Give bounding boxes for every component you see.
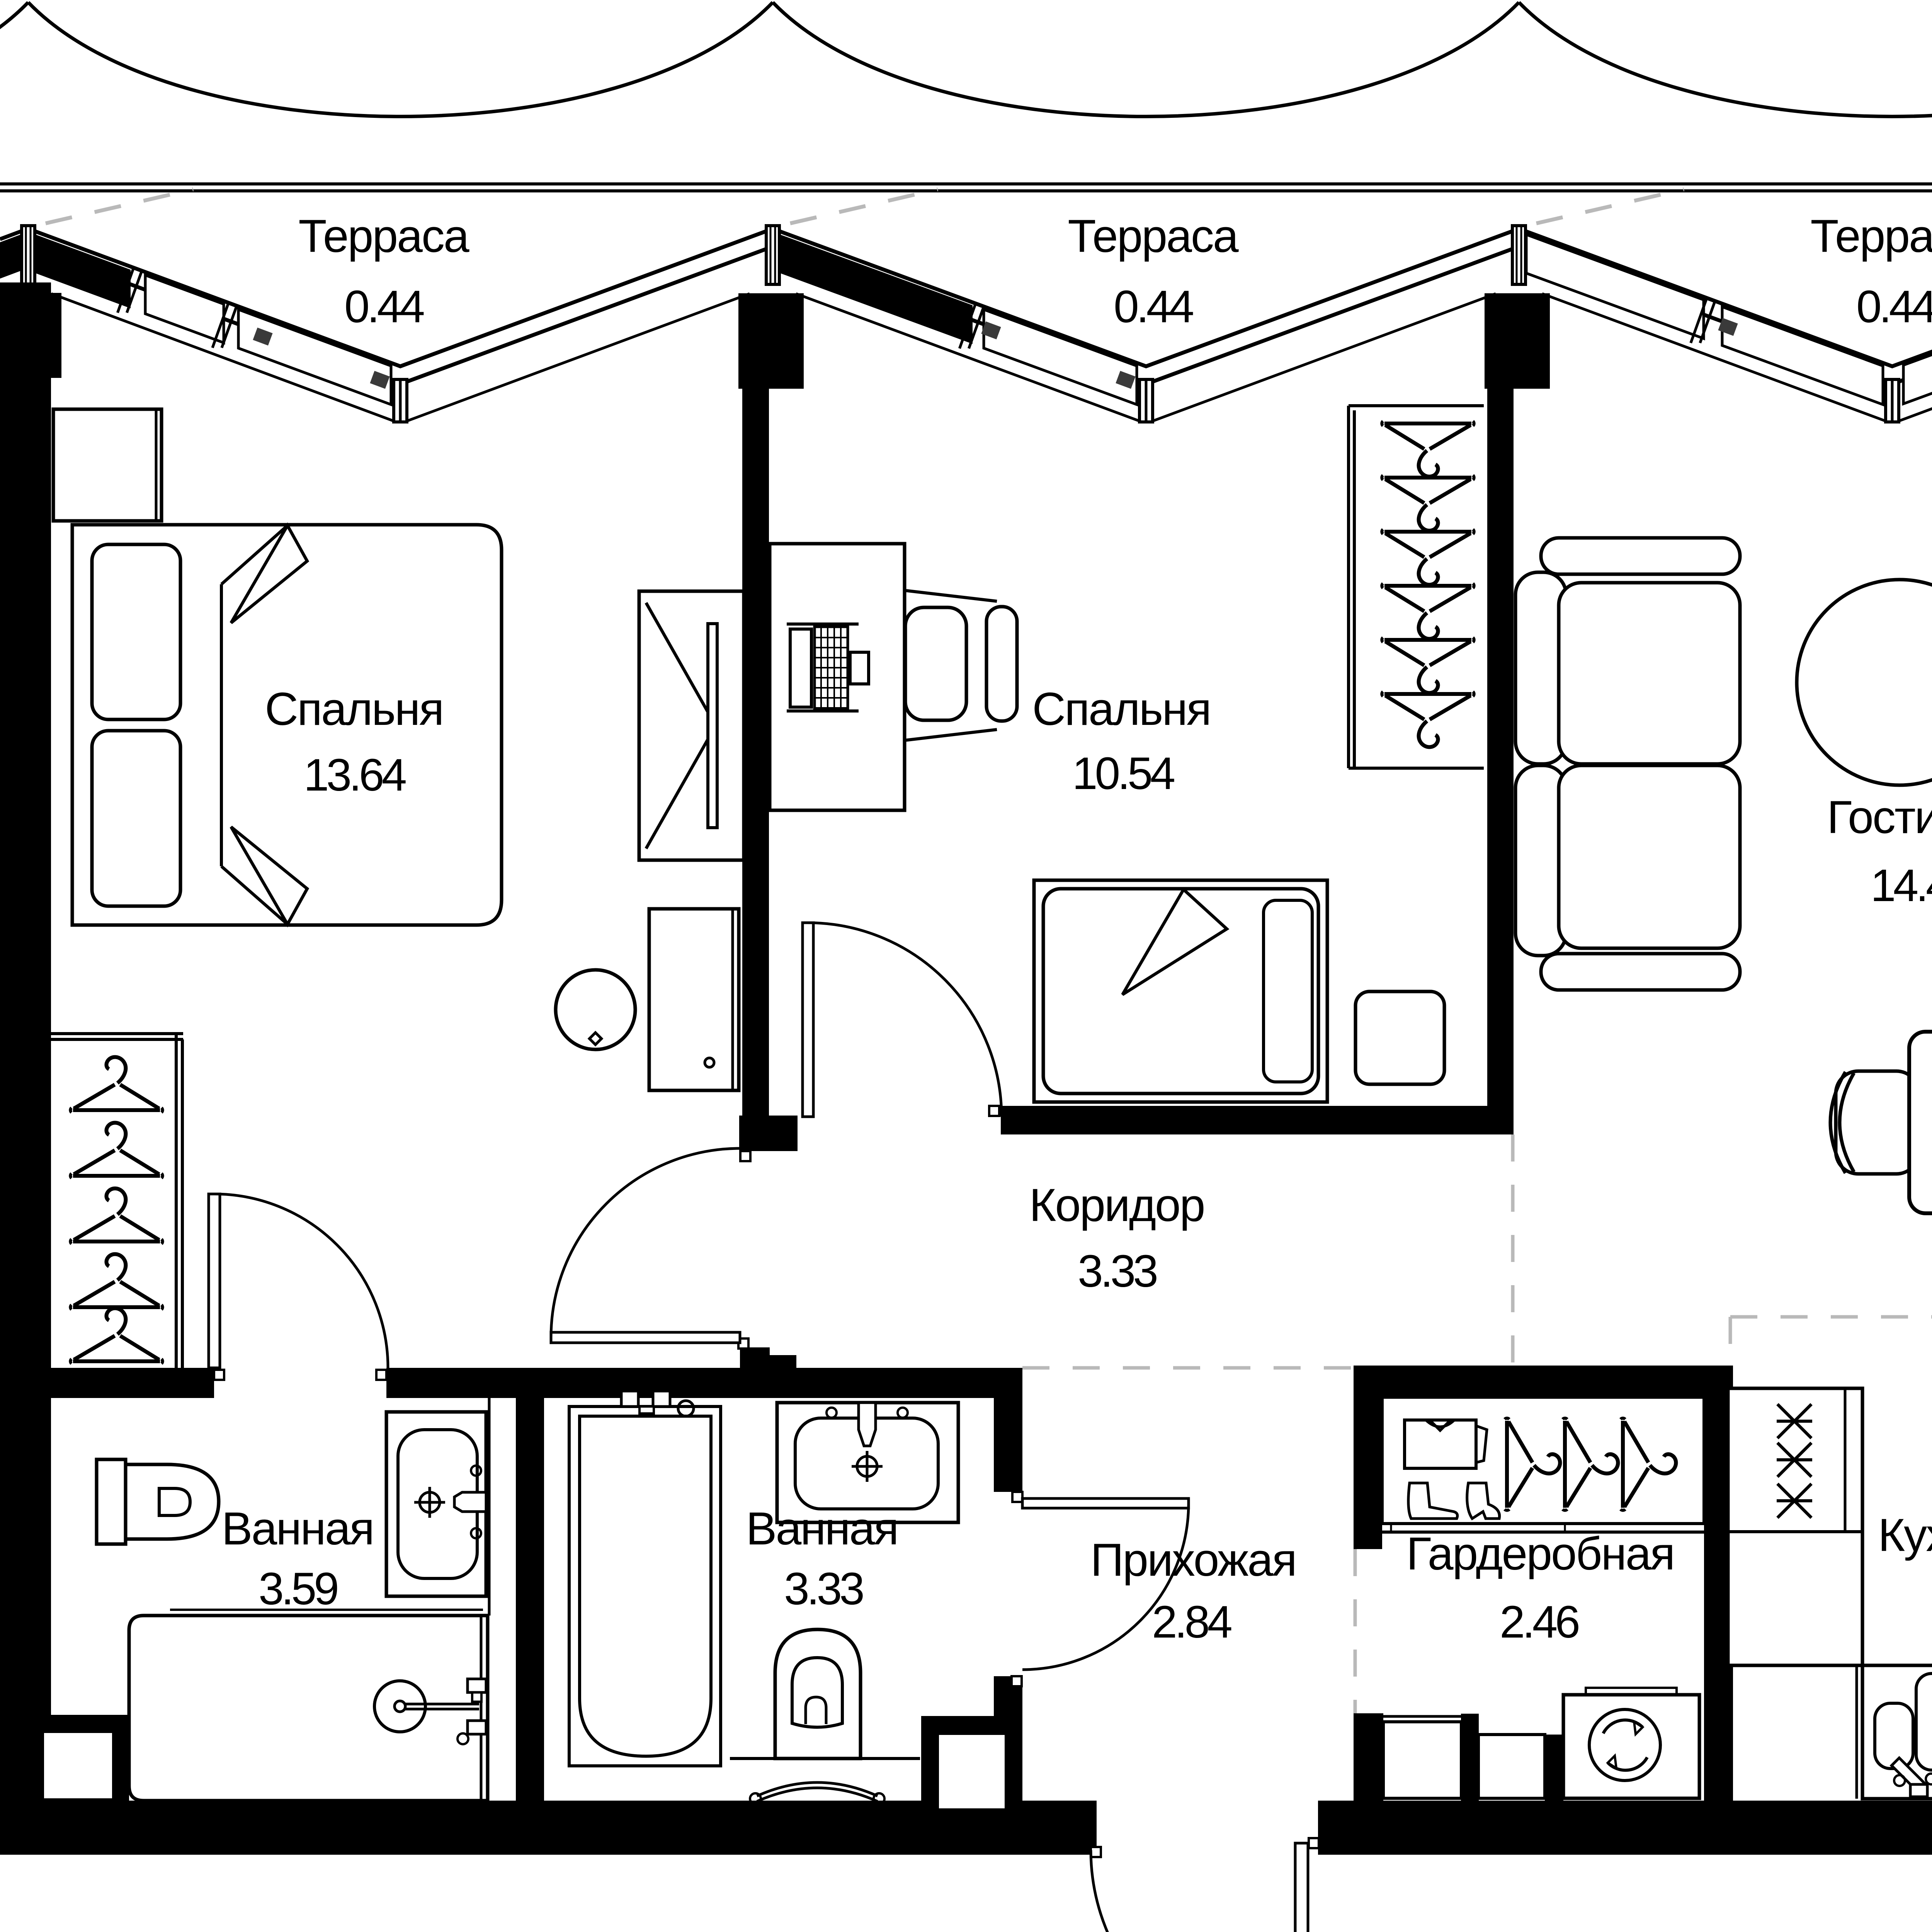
svg-text:14.40: 14.40 <box>1871 860 1932 911</box>
svg-text:0.44: 0.44 <box>1114 281 1193 332</box>
svg-text:2.46: 2.46 <box>1500 1597 1578 1648</box>
svg-text:Коридор: Коридор <box>1029 1179 1204 1231</box>
svg-text:Ванная: Ванная <box>221 1503 373 1554</box>
svg-text:10.54: 10.54 <box>1072 748 1175 799</box>
svg-text:3.33: 3.33 <box>1078 1246 1156 1297</box>
svg-text:Терраса: Терраса <box>298 210 469 262</box>
svg-text:0.44: 0.44 <box>344 281 424 332</box>
svg-text:Спальня: Спальня <box>1032 683 1210 735</box>
svg-text:Гардеробная: Гардеробная <box>1406 1528 1674 1580</box>
svg-text:Прихожая: Прихожая <box>1090 1534 1296 1586</box>
svg-text:Терраса: Терраса <box>1068 210 1239 262</box>
svg-text:13.64: 13.64 <box>304 750 406 801</box>
svg-text:Терраса: Терраса <box>1810 210 1932 262</box>
svg-text:3.33: 3.33 <box>784 1563 863 1614</box>
svg-text:3.59: 3.59 <box>259 1563 337 1614</box>
svg-text:Спальня: Спальня <box>265 683 443 735</box>
svg-text:Кухня-ниша: Кухня-ниша <box>1878 1509 1932 1561</box>
svg-text:2.84: 2.84 <box>1152 1597 1231 1648</box>
svg-text:0.44: 0.44 <box>1856 281 1932 332</box>
svg-text:Ванная: Ванная <box>746 1503 898 1554</box>
svg-text:Гостиная: Гостиная <box>1827 791 1932 843</box>
